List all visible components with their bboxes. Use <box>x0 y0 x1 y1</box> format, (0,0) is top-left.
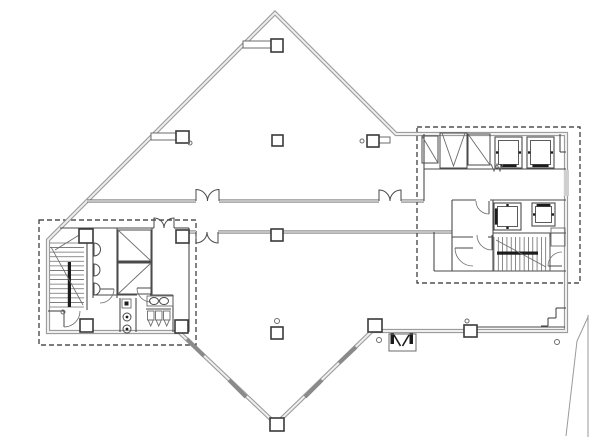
exterior-wall-core <box>48 13 566 424</box>
elevator-guide-rail <box>528 151 530 153</box>
beam-stub <box>151 133 176 140</box>
double-door-leaf <box>196 232 207 243</box>
door-swing-arc <box>476 201 489 214</box>
structural-column <box>79 229 93 243</box>
curtain-wall-panel <box>305 380 322 397</box>
floor-plan-drawing <box>0 0 600 445</box>
elevator-guide-rail <box>552 213 554 215</box>
elevator-guide-rail <box>506 204 508 206</box>
fixture-outline <box>551 228 565 246</box>
structural-column <box>175 320 188 333</box>
door-jamb <box>391 333 395 344</box>
elevator-guide-rail <box>496 151 498 153</box>
structural-column <box>271 39 283 52</box>
double-door-leaf <box>379 190 390 201</box>
structural-column <box>271 327 283 339</box>
survey-marker <box>360 139 364 143</box>
shaft-diagonal <box>118 263 151 294</box>
shaft-diagonal <box>442 133 465 166</box>
elevator-guide-rail <box>506 227 508 229</box>
structural-column <box>368 319 382 332</box>
exterior-wall-outline <box>48 13 566 424</box>
survey-marker <box>555 340 560 345</box>
double-door-leaf <box>390 190 401 201</box>
double-door-leaf <box>207 232 218 243</box>
urinal <box>156 311 163 320</box>
urinal <box>148 311 155 320</box>
elevator-car <box>531 141 551 165</box>
double-door-leaf <box>164 218 174 228</box>
entry-door-leaf <box>403 335 410 346</box>
elevator-shaft <box>527 137 554 168</box>
floor-plan-svg <box>0 0 600 445</box>
curtain-wall-panel <box>229 380 246 397</box>
door-swing-arc <box>100 289 114 303</box>
shaft-diagonal <box>118 230 151 261</box>
structural-column <box>367 135 379 147</box>
shaft-door-leaf <box>94 283 100 295</box>
structural-column <box>176 230 189 243</box>
sink-basin <box>160 298 169 305</box>
urinal <box>164 311 171 320</box>
survey-marker <box>465 319 469 323</box>
double-door-leaf <box>208 190 220 202</box>
door-swing-arc <box>137 288 151 302</box>
structural-column <box>176 131 189 143</box>
floor-drain-center <box>126 328 129 331</box>
elevator-guide-rail <box>533 213 535 215</box>
curtain-wall-panel <box>187 339 204 356</box>
beam-stub <box>379 137 390 143</box>
elevator-car <box>536 207 552 223</box>
shaft-door-leaf <box>94 243 101 256</box>
door-swing-arc <box>64 311 80 327</box>
entry-door-leaf <box>394 335 401 346</box>
site-ramp-edge <box>566 317 588 436</box>
door-swing-arc <box>455 248 473 266</box>
curtain-wall-panel <box>339 347 356 363</box>
sink-basin <box>150 298 159 305</box>
elevator-guide-rail <box>551 151 553 153</box>
stair-handrail <box>68 262 71 307</box>
beam-stub <box>243 41 271 48</box>
floor-drain-center <box>126 316 129 319</box>
elevator-car <box>499 141 519 165</box>
door-jamb <box>125 302 129 306</box>
survey-marker <box>275 319 280 324</box>
structural-column <box>464 325 477 337</box>
structural-column <box>271 229 283 241</box>
shaft-diagonal <box>468 134 490 165</box>
shaft-door-leaf <box>94 264 100 276</box>
door-jamb <box>410 333 414 344</box>
elevator-shaft <box>494 203 521 230</box>
elevator-shaft <box>495 137 522 168</box>
structural-column <box>80 319 93 332</box>
double-door-leaf <box>196 190 208 202</box>
stair-break-line <box>51 247 83 305</box>
urinal-screen <box>164 320 169 326</box>
structural-column <box>272 135 283 146</box>
structural-column <box>270 418 284 431</box>
urinal-screen <box>156 320 161 326</box>
urinal-screen <box>148 320 153 326</box>
elevator-car <box>498 207 518 227</box>
elevator-guide-rail <box>519 151 521 153</box>
east-wall-glazing <box>564 170 569 196</box>
survey-marker <box>377 338 382 343</box>
